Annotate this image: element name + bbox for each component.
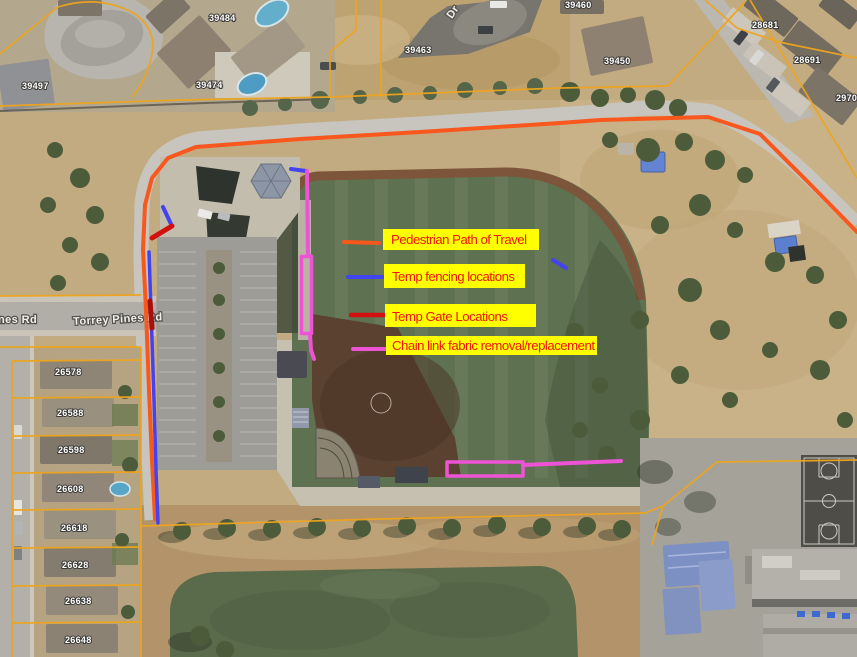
legend-label-temp-fencing: Temp fencing locations (392, 269, 515, 284)
swimming-pool (110, 482, 130, 496)
legend-swatch-pedestrian-path (344, 242, 379, 243)
parcel-label: 39463 (405, 45, 432, 55)
lunch-table (812, 611, 820, 617)
street-label-nes-rd: nes Rd (0, 314, 37, 326)
parcel-label: 39474 (196, 80, 223, 90)
left-street (0, 336, 34, 657)
parking-lot (157, 208, 277, 470)
parked-car (14, 500, 22, 515)
parked-rv (490, 1, 507, 8)
parcel-label: 39497 (22, 81, 49, 91)
concession-building (277, 351, 307, 378)
parcel-label: 28691 (794, 55, 821, 65)
lunch-table (797, 611, 805, 617)
aerial-map-canvas[interactable]: 39497 39484 39474 39463 39460 39450 2868… (0, 0, 857, 657)
parked-car (14, 425, 22, 439)
shade-canopy (788, 245, 806, 262)
annotation-temp-gate-west (150, 301, 152, 328)
bleachers (292, 408, 309, 428)
blue-roof-building (698, 559, 735, 611)
parcel-label: 26638 (65, 596, 92, 606)
parcel-label: 28681 (752, 20, 779, 30)
building (763, 614, 857, 657)
parcel-label: 2970 (836, 93, 857, 103)
parcel-label: 26598 (58, 445, 85, 455)
aerial-site-plan: 39497 39484 39474 39463 39460 39450 2868… (0, 0, 857, 657)
parcel-label: 39484 (209, 13, 236, 23)
parcel-label: 26628 (62, 560, 89, 570)
parcel-label: 26578 (55, 367, 82, 377)
parked-car (320, 62, 336, 70)
lunch-table (827, 612, 835, 618)
legend-label-pedestrian-path: Pedestrian Path of Travel (391, 232, 527, 247)
parcel-label: 39450 (604, 56, 631, 66)
lower-track-field (170, 566, 578, 657)
shade-structure (395, 467, 428, 483)
bleachers (358, 476, 380, 488)
neighborhood-northwest (0, 0, 336, 112)
school-area (637, 438, 857, 657)
legend-label-temp-gates: Temp Gate Locations (392, 309, 508, 324)
parcel-label: 26608 (57, 484, 84, 494)
annotation-chain-link-west-upper (307, 171, 308, 256)
parked-car (478, 26, 493, 34)
ballfield (292, 168, 649, 487)
parcel-label: 26618 (61, 523, 88, 533)
shade-sail (196, 166, 240, 204)
parked-car (15, 521, 23, 535)
parcel-label: 39460 (565, 0, 592, 10)
lunch-table (842, 613, 850, 619)
legend-label-chain-link: Chain link fabric removal/replacement (392, 338, 595, 353)
parcel-label: 26648 (65, 635, 92, 645)
parcel-label: 26588 (57, 408, 84, 418)
annotation-temp-fence-north (291, 169, 306, 171)
blue-roof-building (662, 587, 701, 635)
